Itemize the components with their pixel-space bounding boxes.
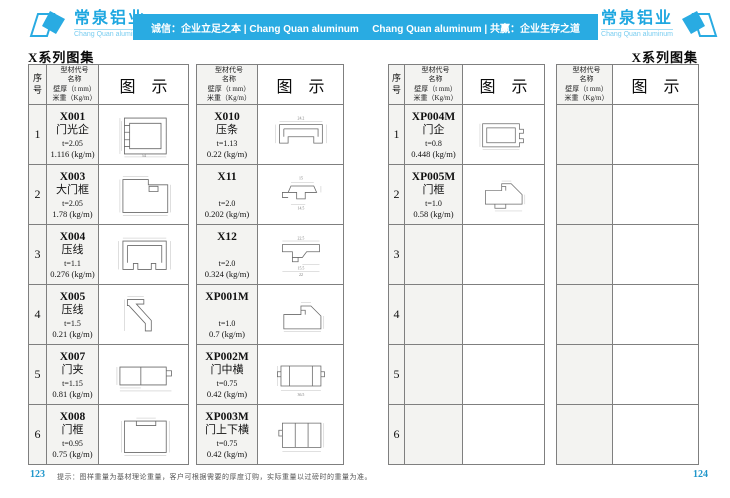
profile-info-cell: X010压条t=1.130.22 (kg/m) (197, 105, 258, 165)
profile-info-cell (405, 345, 463, 405)
profile-info-cell: XP005M门框t=1.00.58 (kg/m) (405, 165, 463, 225)
row-index-cell: 4 (389, 285, 405, 345)
profile-name (197, 183, 257, 197)
row-index: 3 (29, 247, 46, 262)
table-row: XP002M门中横t=0.750.42 (kg/m)36.5 (197, 345, 344, 405)
profile-thickness: t=1.13 (197, 139, 257, 148)
profile-diagram-cell: 54 (99, 105, 189, 165)
logo-left: 常泉铝业 Chang Quan aluminum (27, 7, 146, 41)
svg-text:15.5: 15.5 (297, 266, 304, 270)
catalog-table-right-1: 序号型材代号名称壁厚（t mm）米重（Kg/m）图 示1XP004M门企t=0.… (388, 64, 545, 465)
profile-diagram-cell (463, 285, 545, 345)
profile-diagram: 22.515.522 (261, 229, 341, 283)
row-index-cell: 6 (389, 405, 405, 465)
catalog-table-left-1: 序号型材代号名称壁厚（t mm）米重（Kg/m）图 示1X001门光企t=2.0… (28, 64, 189, 465)
page-number-right: 124 (693, 469, 708, 480)
row-index-cell: 2 (29, 165, 47, 225)
column-header-info-line: 米重（Kg/m） (405, 94, 462, 103)
profile-diagram-cell (463, 225, 545, 285)
profile-name (197, 243, 257, 257)
column-header-profile-info: 型材代号名称壁厚（t mm）米重（Kg/m） (557, 65, 613, 105)
profile-weight: 0.324 (kg/m) (197, 269, 257, 279)
profile-diagram-cell: 36.5 (258, 345, 344, 405)
catalog-table: 型材代号名称壁厚（t mm）米重（Kg/m）图 示X010压条t=1.130.2… (196, 64, 344, 465)
profile-info-cell: X003大门框t=2.051.78 (kg/m) (47, 165, 99, 225)
table-row (557, 225, 699, 285)
logo-diamond-icon (27, 7, 69, 41)
profile-info-cell (557, 225, 613, 285)
table-row: 1XP004M门企t=0.80.448 (kg/m) (389, 105, 545, 165)
company-name-en: Chang Quan aluminum (601, 29, 673, 38)
profile-info-cell: X005压线t=1.50.21 (kg/m) (47, 285, 99, 345)
profile-thickness: t=2.05 (47, 199, 98, 208)
table-row: 6 (389, 405, 545, 465)
profile-diagram-cell (463, 105, 545, 165)
row-index-cell: 6 (29, 405, 47, 465)
profile-info-cell: X007门夹t=1.150.81 (kg/m) (47, 345, 99, 405)
table-row: XP001M t=1.00.7 (kg/m) (197, 285, 344, 345)
profile-info-cell: XP004M门企t=0.80.448 (kg/m) (405, 105, 463, 165)
profile-weight: 1.78 (kg/m) (47, 209, 98, 219)
profile-weight: 0.42 (kg/m) (197, 389, 257, 399)
profile-diagram-cell (613, 165, 699, 225)
row-index: 3 (389, 247, 404, 262)
profile-name: 门框 (405, 183, 462, 197)
profile-info-cell: XP003M门上下横t=0.750.42 (kg/m) (197, 405, 258, 465)
header-banner: 诚信：企业立足之本 | Chang Quan aluminum Chang Qu… (133, 14, 598, 40)
row-index: 6 (389, 427, 404, 442)
column-header-info-line: 壁厚（t mm） (197, 85, 257, 94)
column-header-diagram: 图 示 (463, 65, 545, 105)
table-row (557, 105, 699, 165)
profile-weight: 0.22 (kg/m) (197, 149, 257, 159)
row-index: 4 (29, 307, 46, 322)
profile-code: X003 (47, 171, 98, 183)
profile-weight: 0.81 (kg/m) (47, 389, 98, 399)
profile-code: X004 (47, 231, 98, 243)
profile-diagram-cell (258, 405, 344, 465)
logo-diamond-icon (678, 7, 720, 41)
profile-code: XP002M (197, 351, 257, 363)
profile-diagram-cell (99, 405, 189, 465)
table-row (557, 345, 699, 405)
row-index-cell: 4 (29, 285, 47, 345)
profile-name: 门框 (47, 423, 98, 437)
profile-thickness: t=2.0 (197, 259, 257, 268)
profile-diagram-cell: 1514.5 (258, 165, 344, 225)
catalog-table: 序号型材代号名称壁厚（t mm）米重（Kg/m）图 示1X001门光企t=2.0… (28, 64, 189, 465)
column-header-info-line: 米重（Kg/m） (47, 94, 98, 103)
profile-info-cell (557, 105, 613, 165)
profile-code: X007 (47, 351, 98, 363)
profile-weight: 0.75 (kg/m) (47, 449, 98, 459)
column-header-profile-info: 型材代号名称壁厚（t mm）米重（Kg/m） (47, 65, 99, 105)
profile-thickness: t=0.75 (197, 439, 257, 448)
catalog-table: 型材代号名称壁厚（t mm）米重（Kg/m）图 示 (556, 64, 699, 465)
profile-thickness: t=2.05 (47, 139, 98, 148)
profile-code: X11 (197, 171, 257, 183)
profile-code: X008 (47, 411, 98, 423)
row-index: 1 (389, 127, 404, 142)
table-row: 4 (389, 285, 545, 345)
profile-code: X010 (197, 111, 257, 123)
row-index-cell: 2 (389, 165, 405, 225)
profile-info-cell: XP001M t=1.00.7 (kg/m) (197, 285, 258, 345)
table-row: 5X007门夹t=1.150.81 (kg/m) (29, 345, 189, 405)
profile-weight: 0.58 (kg/m) (405, 209, 462, 219)
profile-thickness: t=1.15 (47, 379, 98, 388)
profile-diagram (465, 169, 541, 223)
profile-diagram: 24.2 (261, 109, 341, 163)
column-header-index: 序号 (389, 65, 405, 105)
profile-weight: 1.116 (kg/m) (47, 149, 98, 159)
profile-diagram (102, 349, 186, 403)
table-row: XP003M门上下横t=0.750.42 (kg/m) (197, 405, 344, 465)
profile-diagram-cell (99, 225, 189, 285)
profile-info-cell (405, 285, 463, 345)
table-row: 4X005压线t=1.50.21 (kg/m) (29, 285, 189, 345)
profile-name: 门企 (405, 123, 462, 137)
column-header-index: 序号 (29, 65, 47, 105)
profile-name: 大门框 (47, 183, 98, 197)
profile-diagram-cell (99, 165, 189, 225)
catalog-page: 常泉铝业 Chang Quan aluminum 诚信：企业立足之本 | Cha… (0, 0, 730, 498)
profile-weight: 0.42 (kg/m) (197, 449, 257, 459)
row-index-cell: 5 (389, 345, 405, 405)
profile-name: 门夹 (47, 363, 98, 377)
table-row: 5 (389, 345, 545, 405)
profile-diagram (102, 409, 186, 463)
svg-text:54: 54 (141, 152, 145, 157)
profile-name: 门上下横 (197, 423, 257, 437)
profile-diagram: 1514.5 (261, 169, 341, 223)
profile-info-cell (557, 345, 613, 405)
profile-info-cell: X001门光企t=2.051.116 (kg/m) (47, 105, 99, 165)
profile-name: 门光企 (47, 123, 98, 137)
profile-name (197, 303, 257, 317)
svg-text:15: 15 (299, 176, 303, 180)
row-index-cell: 1 (29, 105, 47, 165)
profile-diagram-cell (613, 105, 699, 165)
profile-diagram (465, 109, 541, 163)
profile-info-cell (557, 165, 613, 225)
svg-text:22.5: 22.5 (297, 236, 304, 240)
profile-code: X12 (197, 231, 257, 243)
profile-info-cell: X008门框t=0.950.75 (kg/m) (47, 405, 99, 465)
profile-code: XP003M (197, 411, 257, 423)
profile-weight: 0.7 (kg/m) (197, 329, 257, 339)
column-header-diagram: 图 示 (258, 65, 344, 105)
logo-right: 常泉铝业 Chang Quan aluminum (601, 7, 720, 41)
profile-info-cell (405, 405, 463, 465)
svg-text:36.5: 36.5 (297, 392, 304, 396)
profile-thickness: t=2.0 (197, 199, 257, 208)
profile-code: XP005M (405, 171, 462, 183)
page-number-left: 123 (30, 469, 45, 480)
footnote: 提示：图样重量为基材理论重量，客户可根据需要的厚度订购，实际重量以过磅时的重量为… (57, 472, 372, 482)
column-header-info-line: 名称 (557, 75, 612, 84)
profile-code: X005 (47, 291, 98, 303)
profile-code: XP001M (197, 291, 257, 303)
profile-diagram-cell (613, 405, 699, 465)
row-index: 1 (29, 127, 46, 142)
profile-diagram-cell (99, 285, 189, 345)
table-row (557, 285, 699, 345)
column-header-profile-info: 型材代号名称壁厚（t mm）米重（Kg/m） (197, 65, 258, 105)
column-header-diagram: 图 示 (613, 65, 699, 105)
profile-diagram (102, 169, 186, 223)
table-row: 1X001门光企t=2.051.116 (kg/m)54 (29, 105, 189, 165)
profile-diagram (102, 229, 186, 283)
profile-info-cell (405, 225, 463, 285)
column-header-info-line: 名称 (405, 75, 462, 84)
profile-diagram (102, 289, 186, 343)
table-row (557, 165, 699, 225)
row-index: 2 (389, 187, 404, 202)
profile-thickness: t=1.0 (197, 319, 257, 328)
table-row (557, 405, 699, 465)
profile-diagram-cell (463, 345, 545, 405)
column-header-info-line: 米重（Kg/m） (197, 94, 257, 103)
column-header-info-line: 壁厚（t mm） (405, 85, 462, 94)
profile-thickness: t=0.95 (47, 439, 98, 448)
profile-info-cell (557, 405, 613, 465)
profile-weight: 0.276 (kg/m) (47, 269, 98, 279)
profile-name: 压线 (47, 243, 98, 257)
table-row: 3X004压线t=1.10.276 (kg/m) (29, 225, 189, 285)
profile-diagram-cell (463, 405, 545, 465)
column-header-info-line: 型材代号 (47, 66, 98, 75)
row-index: 4 (389, 307, 404, 322)
column-header-info-line: 壁厚（t mm） (47, 85, 98, 94)
profile-diagram-cell (613, 345, 699, 405)
profile-weight: 0.202 (kg/m) (197, 209, 257, 219)
profile-diagram-cell (463, 165, 545, 225)
catalog-table-left-2: 型材代号名称壁厚（t mm）米重（Kg/m）图 示X010压条t=1.130.2… (196, 64, 344, 465)
company-name: 常泉铝业 (601, 11, 673, 27)
banner-slogan-left: 诚信：企业立足之本 | Chang Quan aluminum (151, 20, 359, 35)
table-row: X12 t=2.00.324 (kg/m)22.515.522 (197, 225, 344, 285)
column-header-info-line: 名称 (47, 75, 98, 84)
profile-info-cell (557, 285, 613, 345)
table-row: 2X003大门框t=2.051.78 (kg/m) (29, 165, 189, 225)
column-header-info-line: 型材代号 (557, 66, 612, 75)
profile-diagram-cell: 22.515.522 (258, 225, 344, 285)
profile-diagram-cell (99, 345, 189, 405)
column-header-info-line: 型材代号 (405, 66, 462, 75)
profile-code: XP004M (405, 111, 462, 123)
profile-code: X001 (47, 111, 98, 123)
table-row: 3 (389, 225, 545, 285)
table-row: 2XP005M门框t=1.00.58 (kg/m) (389, 165, 545, 225)
row-index-cell: 1 (389, 105, 405, 165)
column-header-info-line: 壁厚（t mm） (557, 85, 612, 94)
profile-diagram: 36.5 (261, 349, 341, 403)
row-index: 5 (29, 367, 46, 382)
column-header-diagram: 图 示 (99, 65, 189, 105)
column-header-index-label: 序号 (391, 73, 402, 96)
profile-name: 压条 (197, 123, 257, 137)
column-header-info-line: 米重（Kg/m） (557, 94, 612, 103)
profile-weight: 0.21 (kg/m) (47, 329, 98, 339)
profile-name: 门中横 (197, 363, 257, 377)
column-header-profile-info: 型材代号名称壁厚（t mm）米重（Kg/m） (405, 65, 463, 105)
profile-name: 压线 (47, 303, 98, 317)
profile-info-cell: X12 t=2.00.324 (kg/m) (197, 225, 258, 285)
profile-diagram (261, 289, 341, 343)
banner-slogan-right: Chang Quan aluminum | 共赢：企业生存之道 (372, 20, 580, 35)
column-header-index-label: 序号 (32, 73, 43, 96)
profile-thickness: t=1.0 (405, 199, 462, 208)
profile-thickness: t=1.5 (47, 319, 98, 328)
row-index: 5 (389, 367, 404, 382)
profile-info-cell: X004压线t=1.10.276 (kg/m) (47, 225, 99, 285)
catalog-table-right-2: 型材代号名称壁厚（t mm）米重（Kg/m）图 示 (556, 64, 699, 465)
profile-diagram-cell (613, 225, 699, 285)
profile-info-cell: X11 t=2.00.202 (kg/m) (197, 165, 258, 225)
profile-diagram: 54 (102, 109, 186, 163)
profile-thickness: t=1.1 (47, 259, 98, 268)
profile-diagram-cell (613, 285, 699, 345)
row-index: 2 (29, 187, 46, 202)
row-index-cell: 3 (389, 225, 405, 285)
profile-thickness: t=0.75 (197, 379, 257, 388)
profile-info-cell: XP002M门中横t=0.750.42 (kg/m) (197, 345, 258, 405)
column-header-info-line: 名称 (197, 75, 257, 84)
profile-diagram-cell: 24.2 (258, 105, 344, 165)
row-index-cell: 5 (29, 345, 47, 405)
row-index: 6 (29, 427, 46, 442)
svg-text:24.2: 24.2 (297, 116, 304, 120)
column-header-info-line: 型材代号 (197, 66, 257, 75)
svg-text:14.5: 14.5 (297, 206, 304, 210)
profile-weight: 0.448 (kg/m) (405, 149, 462, 159)
catalog-table: 序号型材代号名称壁厚（t mm）米重（Kg/m）图 示1XP004M门企t=0.… (388, 64, 545, 465)
profile-diagram (261, 409, 341, 463)
svg-text:22: 22 (299, 272, 303, 276)
table-row: X010压条t=1.130.22 (kg/m)24.2 (197, 105, 344, 165)
profile-thickness: t=0.8 (405, 139, 462, 148)
table-row: X11 t=2.00.202 (kg/m)1514.5 (197, 165, 344, 225)
row-index-cell: 3 (29, 225, 47, 285)
profile-diagram-cell (258, 285, 344, 345)
table-row: 6X008门框t=0.950.75 (kg/m) (29, 405, 189, 465)
